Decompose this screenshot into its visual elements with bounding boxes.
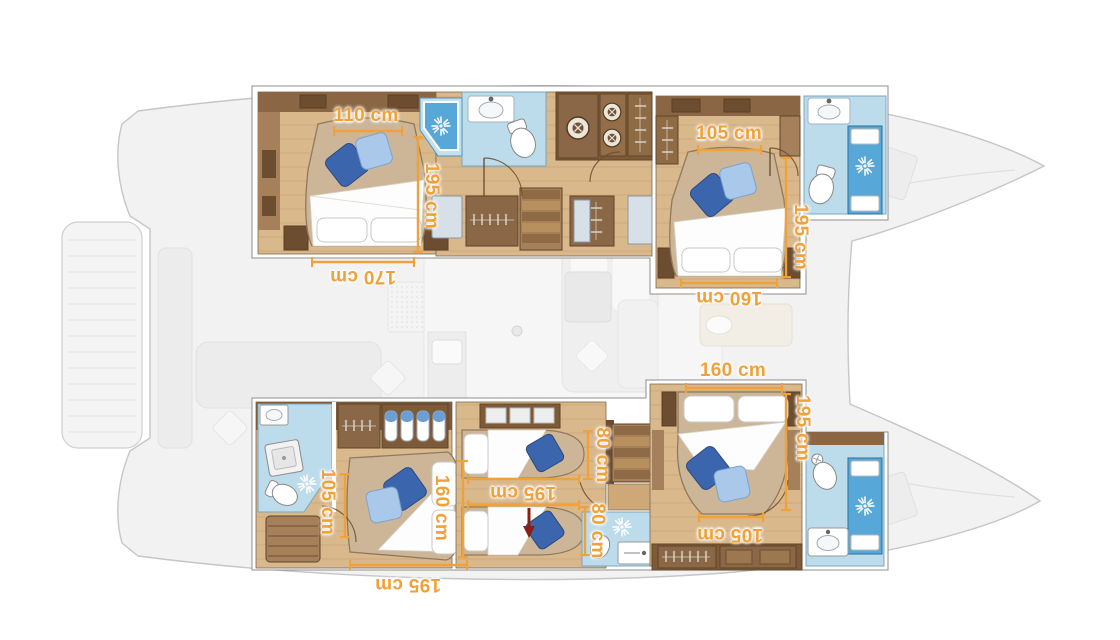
shower-light-icon — [856, 157, 874, 175]
dim-label-br-foot-width: 105 cm — [697, 523, 763, 545]
rolled-towel-icon — [433, 411, 445, 441]
pillow — [682, 248, 730, 272]
dim-label-mid-bed2-width: 80 cm — [586, 503, 608, 558]
dim-label-mid-bed1-width: 80 cm — [591, 427, 613, 482]
top-left-bathroom — [420, 92, 546, 166]
shower-light-icon — [432, 117, 450, 135]
top-right-bathroom — [804, 96, 886, 214]
pillow — [371, 218, 421, 242]
shower-light-icon — [856, 497, 874, 515]
dim-label-bl-head-width: 160 cm — [430, 475, 452, 541]
blue-pillow — [365, 486, 403, 524]
bottom-wardrobe-band — [652, 544, 802, 570]
faucet-icon — [827, 99, 832, 104]
single-bed-2 — [462, 507, 584, 555]
shower-light-icon — [298, 475, 316, 493]
dim-label-bl-foot-width: 105 cm — [316, 469, 338, 535]
floor-plan-page: 110 cm 195 cm 170 cm 105 cm 195 cm 160 c… — [0, 0, 1120, 640]
dim-label-mid-length: 195 cm — [490, 481, 556, 503]
bottom-right-bathroom — [805, 432, 884, 566]
top-left-cabin — [258, 92, 652, 256]
shower-light-icon — [613, 518, 631, 536]
pillow — [464, 511, 488, 551]
rolled-towel-icon — [401, 411, 413, 441]
single-bed-1 — [462, 430, 584, 478]
galley-cabinet-washers — [556, 92, 652, 160]
double-bed-top-left — [306, 118, 427, 246]
pillow — [738, 396, 788, 422]
washer-drum-icon — [603, 103, 621, 121]
dim-label-tr-length: 195 cm — [789, 204, 811, 270]
dim-label-br-head-width: 160 cm — [700, 360, 766, 382]
mirror-locker — [628, 196, 652, 244]
dim-label-tr-foot-width: 105 cm — [696, 123, 762, 145]
dim-label-tl-head-width: 170 cm — [330, 265, 396, 287]
swim-platform — [62, 222, 142, 448]
pillow — [317, 218, 367, 242]
dim-label-tl-foot-width: 110 cm — [333, 105, 398, 127]
pillow — [464, 434, 488, 474]
double-bed-top-right — [670, 147, 787, 276]
faucet-icon — [642, 551, 646, 555]
washer-drum-icon — [567, 117, 589, 139]
faucet-icon — [826, 530, 830, 534]
pillow — [684, 396, 734, 422]
dim-label-br-length: 195 cm — [791, 395, 813, 461]
dim-label-tr-head-width: 160 cm — [696, 286, 762, 308]
bench-seat — [266, 516, 320, 562]
rolled-towel-icon — [385, 411, 397, 441]
blue-pillow — [713, 465, 751, 503]
washer-drum-icon — [603, 129, 621, 147]
double-bed-bottom-right — [678, 392, 789, 514]
rolled-towel-icon — [417, 411, 429, 441]
faucet-icon — [489, 97, 494, 102]
pillow — [734, 248, 782, 272]
mast-step-icon — [512, 326, 522, 336]
dim-label-tl-length: 195 cm — [420, 163, 442, 229]
stairs-top-hull — [520, 188, 562, 250]
dim-label-bl-length: 195 cm — [375, 573, 441, 595]
floor-plan-svg — [0, 0, 1120, 640]
shower-tray — [264, 439, 303, 476]
